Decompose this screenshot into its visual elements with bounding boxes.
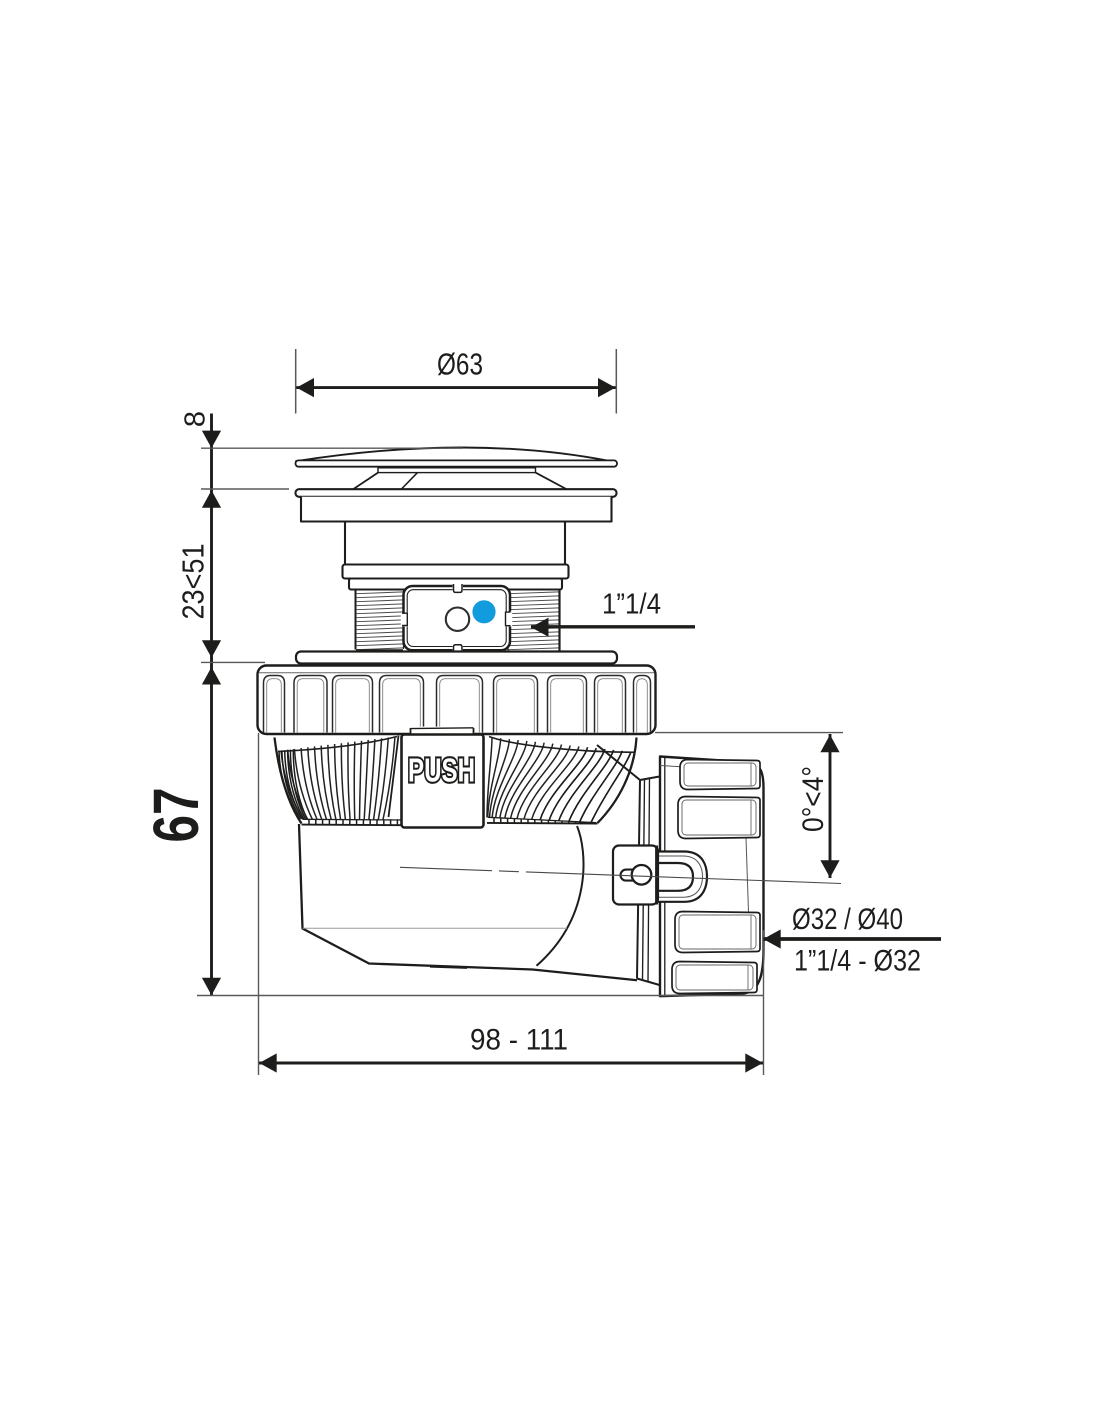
svg-text:1”1/4: 1”1/4 [602,589,661,621]
svg-text:Ø63: Ø63 [437,347,483,382]
svg-text:0°<4°: 0°<4° [797,766,830,832]
svg-text:8: 8 [180,411,212,427]
svg-text:23<51: 23<51 [176,544,211,620]
svg-text:1”1/4 - Ø32: 1”1/4 - Ø32 [794,945,921,978]
svg-text:67: 67 [140,788,212,843]
svg-text:98 - 111: 98 - 111 [470,1024,568,1057]
svg-text:PUSH: PUSH [408,752,475,789]
svg-text:Ø32 / Ø40: Ø32 / Ø40 [792,903,903,936]
